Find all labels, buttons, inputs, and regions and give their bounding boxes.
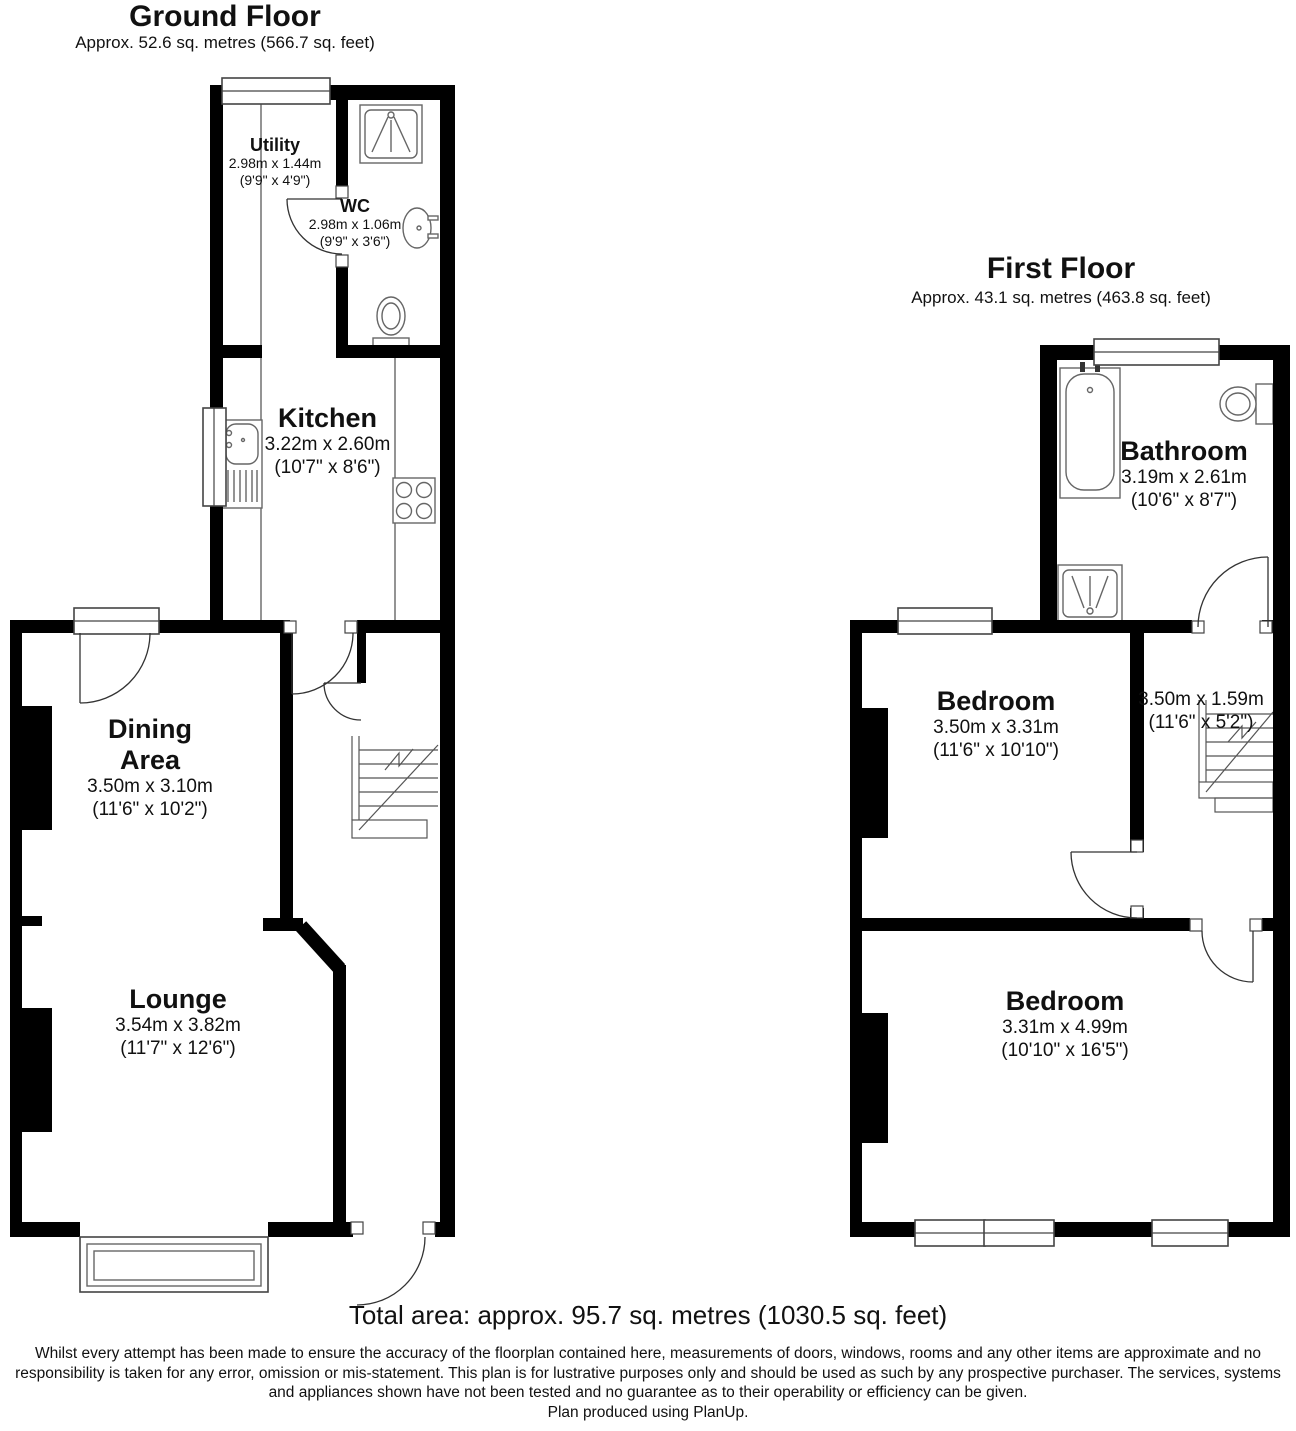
- room-dims-metric: 3.50m x 3.10m: [65, 776, 235, 799]
- window: [1094, 339, 1219, 365]
- room-dims-imperial: (9'9" x 3'6"): [280, 233, 430, 250]
- room-name: Bedroom: [979, 986, 1151, 1017]
- window: [74, 608, 159, 634]
- window: [222, 78, 330, 104]
- total-area-text: Total area: approx. 95.7 sq. metres (103…: [0, 1298, 1296, 1332]
- chimney-breast: [22, 1008, 52, 1132]
- door-bathroom: [1192, 557, 1272, 633]
- door-front: [351, 1222, 435, 1305]
- ground-floor-area: Approx. 52.6 sq. metres (566.7 sq. feet): [45, 33, 405, 53]
- wall: [10, 916, 42, 926]
- wall: [435, 1222, 455, 1237]
- room-name: Bathroom: [1098, 436, 1270, 467]
- room-dims-imperial: (10'6" x 8'7"): [1098, 490, 1270, 513]
- wall: [10, 620, 22, 1237]
- door-dining-hall: [324, 683, 361, 720]
- wall: [862, 918, 1190, 931]
- toilet-icon: [373, 297, 409, 352]
- room-dims-imperial: (11'6" x 10'2"): [65, 799, 235, 822]
- wall: [1054, 1222, 1152, 1237]
- room-dims-metric: 3.50m x 1.59m: [1126, 689, 1276, 712]
- shower-icon: [360, 105, 422, 163]
- room-name: Lounge: [93, 984, 263, 1015]
- kitchen-label: Kitchen 3.22m x 2.60m (10'7" x 8'6"): [240, 403, 415, 479]
- chimney-breast: [862, 708, 888, 838]
- landing-label: 3.50m x 1.59m (11'6" x 5'2"): [1126, 689, 1276, 734]
- wall: [1040, 620, 1192, 633]
- toilet-icon: [1220, 384, 1273, 424]
- window: [915, 1220, 985, 1246]
- wall-diagonal: [301, 926, 340, 969]
- first-floor-title: First Floor: [881, 252, 1241, 285]
- room-dims-metric: 3.31m x 4.99m: [979, 1017, 1151, 1040]
- room-dims-metric: 2.98m x 1.44m: [200, 155, 350, 172]
- room-name: Dining: [65, 714, 235, 745]
- room-dims-metric: 3.22m x 2.60m: [240, 434, 415, 457]
- wall: [1040, 345, 1057, 633]
- bedroom-rear-label: Bedroom 3.31m x 4.99m (10'10" x 16'5"): [979, 986, 1151, 1062]
- window: [898, 608, 992, 634]
- window: [984, 1220, 1054, 1246]
- door-bedroom-rear: [1190, 919, 1262, 982]
- room-dims-imperial: (11'7" x 12'6"): [93, 1038, 263, 1061]
- floorplan-page: Ground Floor Approx. 52.6 sq. metres (56…: [0, 0, 1296, 1431]
- bathroom-label: Bathroom 3.19m x 2.61m (10'6" x 8'7"): [1098, 436, 1270, 512]
- door-back: [80, 633, 150, 703]
- window: [203, 408, 226, 506]
- wall: [336, 262, 348, 345]
- wall: [1273, 345, 1290, 1237]
- room-name: Area: [65, 745, 235, 776]
- dining-area-label: Dining Area 3.50m x 3.10m (11'6" x 10'2"…: [65, 714, 235, 821]
- wall: [357, 633, 366, 683]
- room-dims-metric: 3.19m x 2.61m: [1098, 467, 1270, 490]
- wall: [10, 1222, 80, 1237]
- bay-window: [80, 1237, 268, 1292]
- room-dims-imperial: (10'7" x 8'6"): [240, 457, 415, 480]
- ground-floor-walls: [10, 85, 455, 1237]
- wall: [1130, 633, 1144, 852]
- ground-floor-plan: [10, 78, 455, 1305]
- wall: [1262, 918, 1273, 931]
- wall: [333, 965, 346, 1237]
- room-name: Utility: [200, 135, 350, 155]
- staircase-ground: [352, 736, 438, 838]
- hob-icon: [393, 478, 435, 523]
- room-dims-metric: 3.50m x 3.31m: [910, 717, 1082, 740]
- lounge-label: Lounge 3.54m x 3.82m (11'7" x 12'6"): [93, 984, 263, 1060]
- wall: [263, 918, 303, 931]
- first-floor-fixtures: [1058, 362, 1273, 812]
- shower-icon: [1058, 565, 1122, 622]
- wall: [850, 620, 862, 1237]
- utility-label: Utility 2.98m x 1.44m (9'9" x 4'9"): [200, 135, 350, 189]
- chimney-breast: [22, 706, 52, 830]
- chimney-breast: [862, 1013, 888, 1143]
- room-dims-metric: 2.98m x 1.06m: [280, 216, 430, 233]
- wall: [850, 1222, 915, 1237]
- disclaimer-text: Whilst every attempt has been made to en…: [14, 1344, 1282, 1403]
- wall: [210, 345, 262, 358]
- door-bedroom-front: [1071, 840, 1143, 918]
- wall: [440, 85, 455, 1237]
- wall: [159, 620, 290, 633]
- wall: [357, 620, 440, 633]
- wall: [280, 633, 293, 920]
- wall: [1228, 1222, 1290, 1237]
- wall: [336, 345, 455, 358]
- room-dims-imperial: (11'6" x 10'10"): [910, 740, 1082, 763]
- window: [1152, 1220, 1228, 1246]
- wc-label: WC 2.98m x 1.06m (9'9" x 3'6"): [280, 196, 430, 250]
- room-dims-imperial: (9'9" x 4'9"): [200, 172, 350, 189]
- room-name: WC: [280, 196, 430, 216]
- room-dims-imperial: (10'10" x 16'5"): [979, 1040, 1151, 1063]
- first-floor-area: Approx. 43.1 sq. metres (463.8 sq. feet): [881, 288, 1241, 308]
- bedroom-front-label: Bedroom 3.50m x 3.31m (11'6" x 10'10"): [910, 686, 1082, 762]
- room-name: Bedroom: [910, 686, 1082, 717]
- room-dims-imperial: (11'6" x 5'2"): [1126, 712, 1276, 735]
- credit-text: Plan produced using PlanUp.: [0, 1403, 1296, 1423]
- ground-floor-title: Ground Floor: [45, 0, 405, 33]
- wall: [268, 1222, 353, 1237]
- room-dims-metric: 3.54m x 3.82m: [93, 1015, 263, 1038]
- room-name: Kitchen: [240, 403, 415, 434]
